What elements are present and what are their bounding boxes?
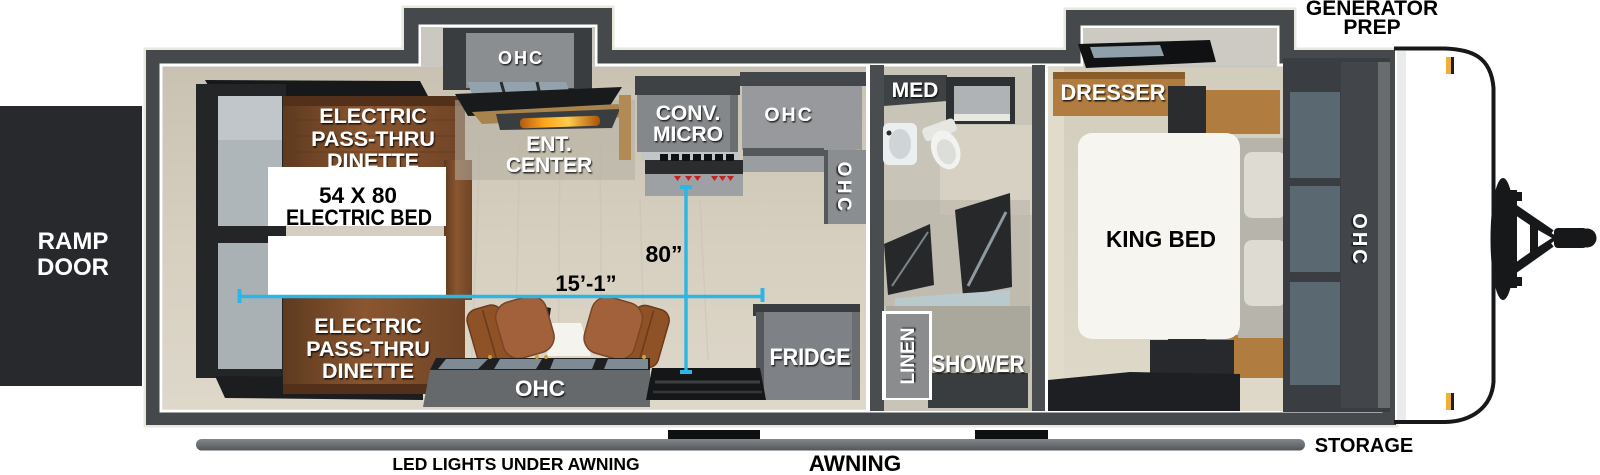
svg-text:ENT.: ENT. — [526, 133, 572, 156]
svg-text:PASS-THRU: PASS-THRU — [306, 337, 430, 361]
svg-text:OHC: OHC — [498, 48, 544, 68]
svg-text:ELECTRIC BED: ELECTRIC BED — [286, 205, 432, 230]
svg-text:DINETTE: DINETTE — [322, 359, 414, 383]
svg-text:RAMP: RAMP — [38, 228, 109, 255]
svg-text:CENTER: CENTER — [506, 154, 592, 177]
svg-text:MICRO: MICRO — [653, 123, 723, 146]
svg-text:LED LIGHTS UNDER AWNING: LED LIGHTS UNDER AWNING — [392, 454, 639, 474]
svg-text:STORAGE: STORAGE — [1315, 435, 1414, 457]
svg-text:DOOR: DOOR — [37, 254, 109, 281]
svg-text:FRIDGE: FRIDGE — [770, 344, 851, 371]
svg-text:PASS-THRU: PASS-THRU — [311, 127, 435, 151]
svg-text:OHC: OHC — [515, 376, 565, 401]
svg-text:CONV.: CONV. — [656, 102, 721, 125]
svg-text:ELECTRIC: ELECTRIC — [319, 104, 427, 128]
svg-text:AWNING: AWNING — [809, 451, 902, 475]
svg-text:SHOWER: SHOWER — [932, 351, 1025, 378]
svg-text:OHC: OHC — [1348, 213, 1370, 266]
svg-text:LINEN: LINEN — [898, 328, 919, 385]
svg-text:PREP: PREP — [1343, 16, 1400, 39]
svg-text:KING BED: KING BED — [1106, 226, 1216, 252]
svg-text:80”: 80” — [645, 241, 682, 267]
svg-text:OHC: OHC — [833, 162, 854, 215]
svg-text:ELECTRIC: ELECTRIC — [314, 314, 422, 338]
svg-text:15’-1”: 15’-1” — [555, 271, 616, 296]
svg-text:DRESSER: DRESSER — [1061, 80, 1166, 105]
svg-text:OHC: OHC — [764, 104, 813, 126]
svg-text:MED: MED — [892, 79, 939, 102]
